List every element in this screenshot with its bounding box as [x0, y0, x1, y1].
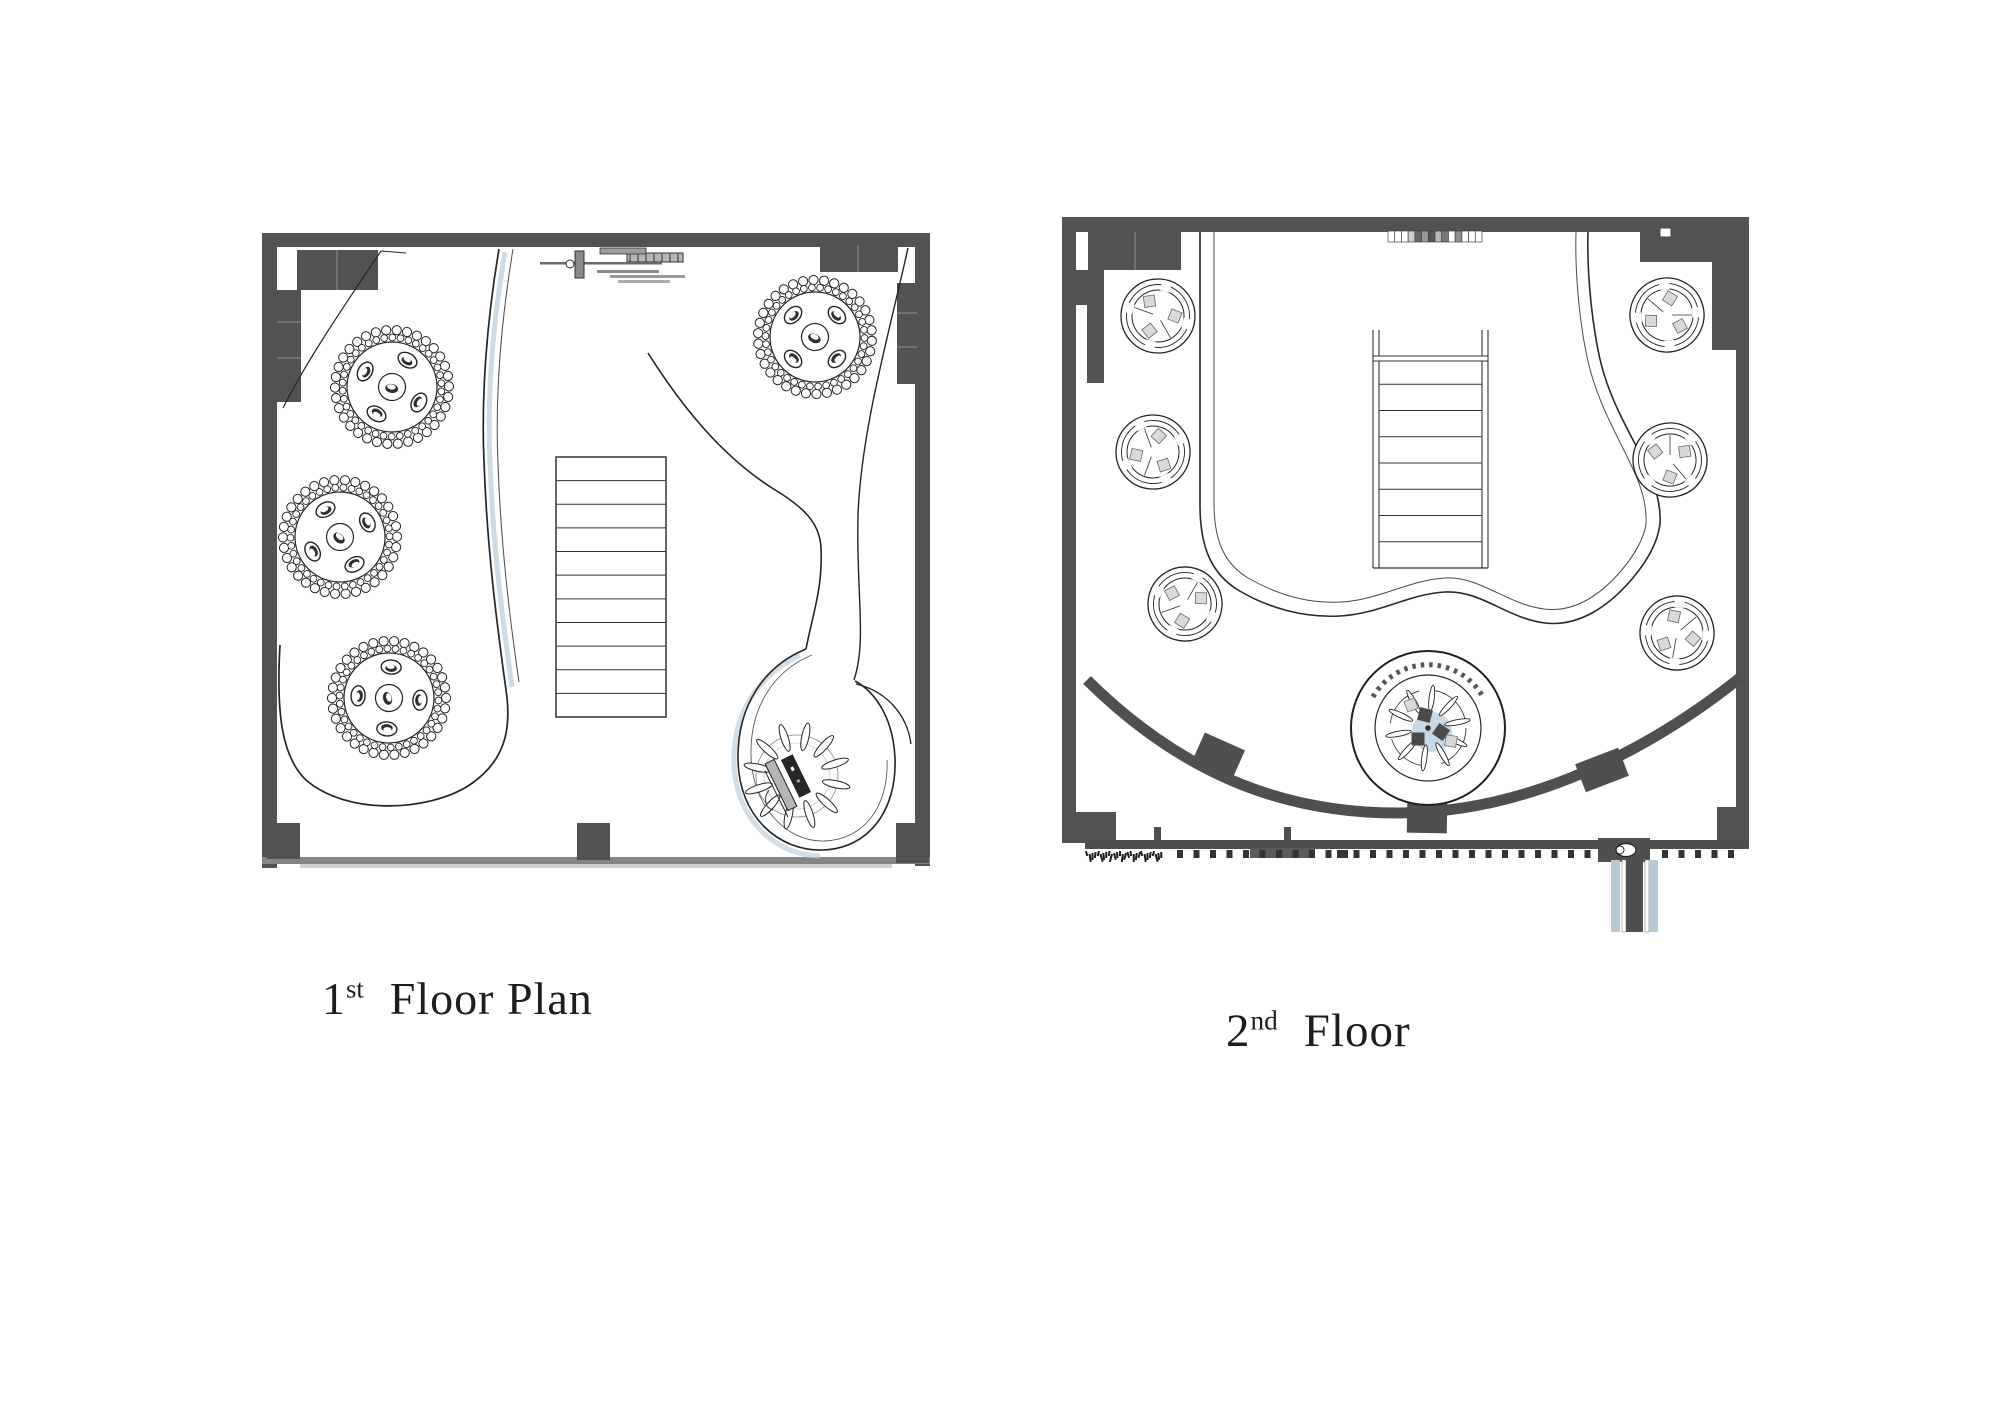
floor2-left-wall: [1062, 217, 1076, 843]
sunburst-feature: [743, 722, 850, 829]
baluster-tick: [1293, 850, 1299, 858]
floor2-left-block: [1076, 270, 1104, 305]
baluster-tick: [1370, 850, 1376, 858]
floor2-caption-text: Floor: [1304, 1005, 1411, 1057]
baluster-tick: [1728, 850, 1734, 858]
floor1-caption-text: Floor Plan: [390, 973, 593, 1024]
floor-plan-drawing: [0, 0, 2000, 1414]
dining-table-symbol: [313, 622, 465, 774]
baluster-tick: [1568, 850, 1574, 858]
baluster-tick: [1695, 850, 1701, 858]
baluster-tick: [1502, 850, 1508, 858]
baluster-tick: [1535, 850, 1541, 858]
booth-symbol: [1619, 409, 1720, 510]
floor2-right-block: [1712, 262, 1736, 350]
baluster-tick: [1420, 850, 1426, 858]
baluster-tick: [1469, 850, 1475, 858]
baluster-tick: [1453, 850, 1459, 858]
dining-table-symbol: [321, 316, 464, 458]
baluster-tick: [1486, 850, 1492, 858]
floor2-booths: [1101, 268, 1721, 676]
dining-table-symbol: [733, 255, 897, 418]
baluster-tick: [1337, 850, 1343, 858]
bench-block: [1191, 733, 1245, 782]
shelf-cell: [1415, 231, 1422, 242]
baluster-tick: [1260, 850, 1266, 858]
baluster-tick: [1309, 850, 1315, 858]
organic-waist-curve: [648, 353, 821, 649]
floor1-left-blocks: [277, 290, 301, 402]
booth-symbol: [1101, 400, 1205, 504]
railing-post: [1284, 827, 1291, 840]
railing-post: [1154, 827, 1161, 840]
floor1-bottom-column: [577, 823, 610, 860]
floor1-top-right-block: [820, 245, 898, 272]
entry-tick: [381, 251, 406, 253]
floor2-left-block: [1087, 305, 1104, 345]
baluster-tick: [1712, 850, 1718, 858]
shelf-cell: [1435, 231, 1442, 242]
baluster-tick: [1354, 850, 1360, 858]
bar-counter-equipment: [540, 248, 685, 283]
baluster-tick: [1177, 850, 1183, 858]
shelf-cell: [1442, 231, 1449, 242]
floor2-caption-number: 2: [1226, 1005, 1251, 1057]
booth-symbol: [1121, 279, 1195, 353]
shelf-cell: [1428, 231, 1435, 242]
shelf-cell: [1469, 231, 1476, 242]
floor1-bottom-column: [267, 823, 300, 859]
booth-symbol: [1142, 561, 1228, 647]
floor2-caption: 2ndFloor: [1226, 1004, 1411, 1058]
floor1-caption: 1stFloor Plan: [322, 972, 593, 1025]
baluster-tick: [1519, 850, 1525, 858]
floor2-top-right-block: [1640, 232, 1736, 262]
floor1-caption-number: 1: [322, 973, 346, 1024]
shelf-cell: [1401, 231, 1408, 242]
baluster-tick: [1552, 850, 1558, 858]
baluster-tick: [1679, 850, 1685, 858]
floor2-left-block: [1087, 345, 1104, 383]
floor2-right-wall: [1736, 217, 1749, 843]
floor1-right-wall: [915, 233, 930, 866]
shelf-cell: [1455, 231, 1462, 242]
baluster-tick: [1210, 850, 1216, 858]
canopy-side: [1611, 860, 1620, 932]
booth-symbol: [1620, 268, 1715, 363]
spiral-stair: [1351, 651, 1505, 805]
baluster-tick: [1662, 850, 1668, 858]
partition-shadow: [489, 252, 512, 687]
wall-notch: [1660, 228, 1671, 237]
dining-table-symbol: [253, 450, 427, 624]
baluster-tick: [1243, 850, 1249, 858]
floor1-left-wall: [262, 233, 277, 868]
floor-plan-sheet: 1stFloor Plan 2ndFloor: [0, 0, 2000, 1414]
shelf-cell: [1462, 231, 1469, 242]
floor2-top-wall: [1062, 217, 1749, 232]
shelf-cell: [1395, 231, 1402, 242]
shelf-cell: [1388, 231, 1395, 242]
canopy-gap: [1622, 860, 1626, 932]
floor2-bottom-right-block: [1717, 807, 1749, 841]
baluster-tick: [1436, 850, 1442, 858]
baluster-tick: [1276, 850, 1282, 858]
railing-hatch-detail: [1085, 851, 1162, 862]
canopy-core: [1626, 860, 1643, 932]
floor1-staircase: [556, 457, 666, 717]
baluster-tick: [1326, 850, 1332, 858]
floor1-caption-ordinal: st: [346, 974, 364, 1004]
floor1-right-blocks: [897, 283, 917, 384]
shelf-cell: [1448, 231, 1455, 242]
entrance-canopy: [1598, 838, 1658, 932]
door-swing-arc: [856, 684, 911, 744]
baluster-tick: [1227, 850, 1233, 858]
floor1-plan: [253, 233, 930, 868]
floor1-bottom-wall-edge: [300, 864, 892, 868]
booth-symbol: [1634, 590, 1720, 676]
wall-shelf-detail: [1388, 231, 1482, 242]
shelf-cell: [1422, 231, 1429, 242]
floor1-top-wall: [262, 233, 930, 247]
baluster-tick: [1403, 850, 1409, 858]
bench-block: [1407, 803, 1448, 834]
baluster-tick: [1387, 850, 1393, 858]
lounge-enclosure-curve: [1200, 232, 1660, 623]
canopy-gap: [1645, 860, 1649, 932]
floor1-bottom-column: [896, 823, 929, 863]
canopy-fixture: [1616, 844, 1636, 857]
baluster-tick: [1194, 850, 1200, 858]
floor2-plan: [1062, 217, 1749, 932]
floor2-bottom-left-block: [1076, 812, 1116, 843]
floor2-staircase: [1373, 330, 1488, 568]
shelf-cell: [1475, 231, 1482, 242]
railing-balusters: [1177, 850, 1734, 858]
baluster-tick: [1585, 850, 1591, 858]
shelf-cell: [1408, 231, 1415, 242]
floor2-caption-ordinal: nd: [1251, 1005, 1278, 1035]
lounge-enclosure-inner: [1214, 232, 1646, 610]
canopy-side: [1649, 860, 1658, 932]
